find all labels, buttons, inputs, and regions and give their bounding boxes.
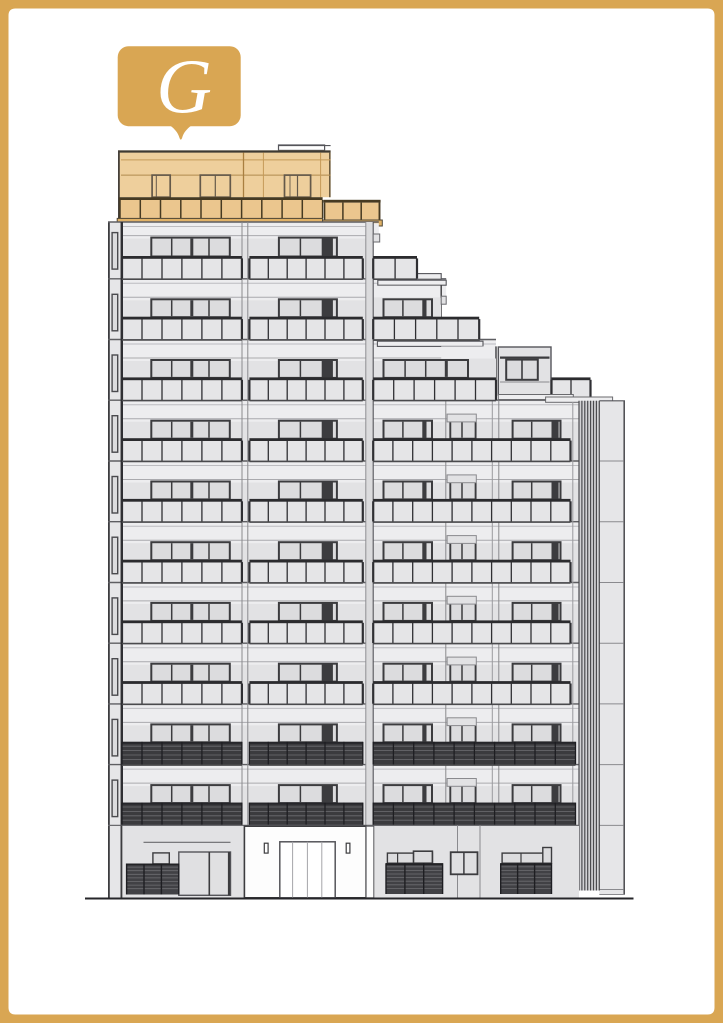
svg-text:G: G	[156, 44, 212, 130]
